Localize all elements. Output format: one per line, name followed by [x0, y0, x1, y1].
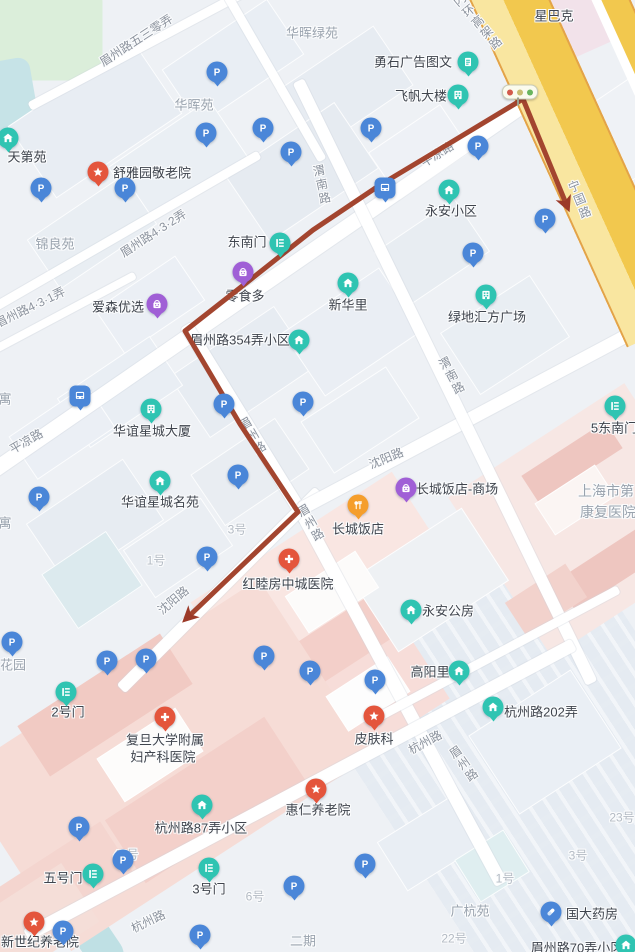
community-pin-icon[interactable] — [483, 697, 504, 718]
svg-text:P: P — [143, 654, 150, 665]
gate-pin-icon[interactable] — [605, 396, 626, 417]
parking-pin-icon[interactable]: P — [190, 925, 211, 946]
svg-text:P: P — [368, 123, 375, 134]
transit-pin-icon[interactable] — [70, 386, 91, 407]
svg-text:P: P — [38, 183, 45, 194]
map-canvas[interactable]: 星巴克眉州路五三零弄华晖绿苑勇石广告图文飞帆大楼华晖苑内环高架路天第苑舒雅园敬老… — [0, 0, 635, 952]
community-pin-icon[interactable] — [150, 471, 171, 492]
svg-text:P: P — [104, 656, 111, 667]
svg-text:P: P — [197, 930, 204, 941]
community-pin-icon[interactable] — [0, 128, 19, 149]
svg-text:P: P — [288, 147, 295, 158]
svg-text:P: P — [120, 855, 127, 866]
svg-text:P: P — [36, 492, 43, 503]
hospital-pin-icon[interactable] — [155, 707, 176, 728]
svg-text:P: P — [214, 67, 221, 78]
parking-pin-icon[interactable]: P — [69, 817, 90, 838]
traffic-light-red-dot — [507, 89, 513, 95]
svg-text:P: P — [221, 399, 228, 410]
pharmacy-pin-icon[interactable] — [541, 902, 562, 923]
parking-pin-icon[interactable]: P — [53, 921, 74, 942]
svg-text:P: P — [362, 859, 369, 870]
svg-text:P: P — [60, 926, 67, 937]
svg-text:P: P — [204, 552, 211, 563]
svg-text:P: P — [122, 183, 129, 194]
gate-pin-icon[interactable] — [270, 233, 291, 254]
community-pin-icon[interactable] — [616, 935, 635, 952]
parking-pin-icon[interactable]: P — [29, 487, 50, 508]
parking-pin-icon[interactable]: P — [284, 876, 305, 897]
gate-pin-icon[interactable] — [83, 864, 104, 885]
svg-text:P: P — [300, 397, 307, 408]
care-pin-icon[interactable] — [24, 912, 45, 933]
parking-pin-icon[interactable]: P — [468, 136, 489, 157]
parking-pin-icon[interactable]: P — [2, 632, 23, 653]
care-pin-icon[interactable] — [306, 779, 327, 800]
care-pin-icon[interactable] — [88, 162, 109, 183]
svg-text:P: P — [203, 128, 210, 139]
shop-pin-icon[interactable] — [396, 478, 417, 499]
parking-pin-icon[interactable]: P — [365, 670, 386, 691]
community-pin-icon[interactable] — [439, 180, 460, 201]
parking-pin-icon[interactable]: P — [136, 649, 157, 670]
parking-pin-icon[interactable]: P — [196, 123, 217, 144]
building-pin-icon[interactable] — [448, 85, 469, 106]
shop-pin-icon[interactable] — [147, 294, 168, 315]
building-pin-icon[interactable] — [476, 285, 497, 306]
community-pin-icon[interactable] — [401, 600, 422, 621]
parking-pin-icon[interactable]: P — [253, 118, 274, 139]
parking-pin-icon[interactable]: P — [281, 142, 302, 163]
parking-pin-icon[interactable]: P — [300, 661, 321, 682]
community-pin-icon[interactable] — [449, 661, 470, 682]
parking-pin-icon[interactable]: P — [535, 209, 556, 230]
building-pin-icon[interactable] — [141, 399, 162, 420]
food-pin-icon[interactable] — [348, 495, 369, 516]
parking-pin-icon[interactable]: P — [463, 243, 484, 264]
svg-text:P: P — [260, 123, 267, 134]
traffic-light-icon — [502, 85, 538, 100]
parking-pin-icon[interactable]: P — [207, 62, 228, 83]
parking-pin-icon[interactable]: P — [228, 465, 249, 486]
parking-pin-icon[interactable]: P — [113, 850, 134, 871]
hospital-pin-icon[interactable] — [279, 549, 300, 570]
parking-pin-icon[interactable]: P — [355, 854, 376, 875]
svg-text:P: P — [76, 822, 83, 833]
parking-pin-icon[interactable]: P — [197, 547, 218, 568]
traffic-light-green-dot — [527, 89, 533, 95]
office-pin-icon[interactable] — [458, 52, 479, 73]
svg-text:P: P — [291, 881, 298, 892]
traffic-light-yellow-dot — [517, 89, 523, 95]
parking-pin-icon[interactable]: P — [115, 178, 136, 199]
svg-text:P: P — [307, 666, 314, 677]
svg-text:P: P — [372, 675, 379, 686]
parking-pin-icon[interactable]: P — [97, 651, 118, 672]
community-pin-icon[interactable] — [338, 273, 359, 294]
parking-pin-icon[interactable]: P — [31, 178, 52, 199]
svg-text:P: P — [9, 637, 16, 648]
svg-text:P: P — [470, 248, 477, 259]
transit-pin-icon[interactable] — [375, 178, 396, 199]
svg-text:P: P — [542, 214, 549, 225]
svg-text:P: P — [261, 651, 268, 662]
gate-pin-icon[interactable] — [56, 682, 77, 703]
svg-text:P: P — [235, 470, 242, 481]
gate-pin-icon[interactable] — [199, 858, 220, 879]
parking-pin-icon[interactable]: P — [361, 118, 382, 139]
shop-pin-icon[interactable] — [233, 262, 254, 283]
community-pin-icon[interactable] — [289, 330, 310, 351]
community-pin-icon[interactable] — [192, 795, 213, 816]
parking-pin-icon[interactable]: P — [254, 646, 275, 667]
care-pin-icon[interactable] — [364, 706, 385, 727]
pins-layer: PPPPPPPPPPPPPPPPPPPPPPPPPPP — [0, 0, 635, 952]
parking-pin-icon[interactable]: P — [293, 392, 314, 413]
parking-pin-icon[interactable]: P — [214, 394, 235, 415]
svg-text:P: P — [475, 141, 482, 152]
